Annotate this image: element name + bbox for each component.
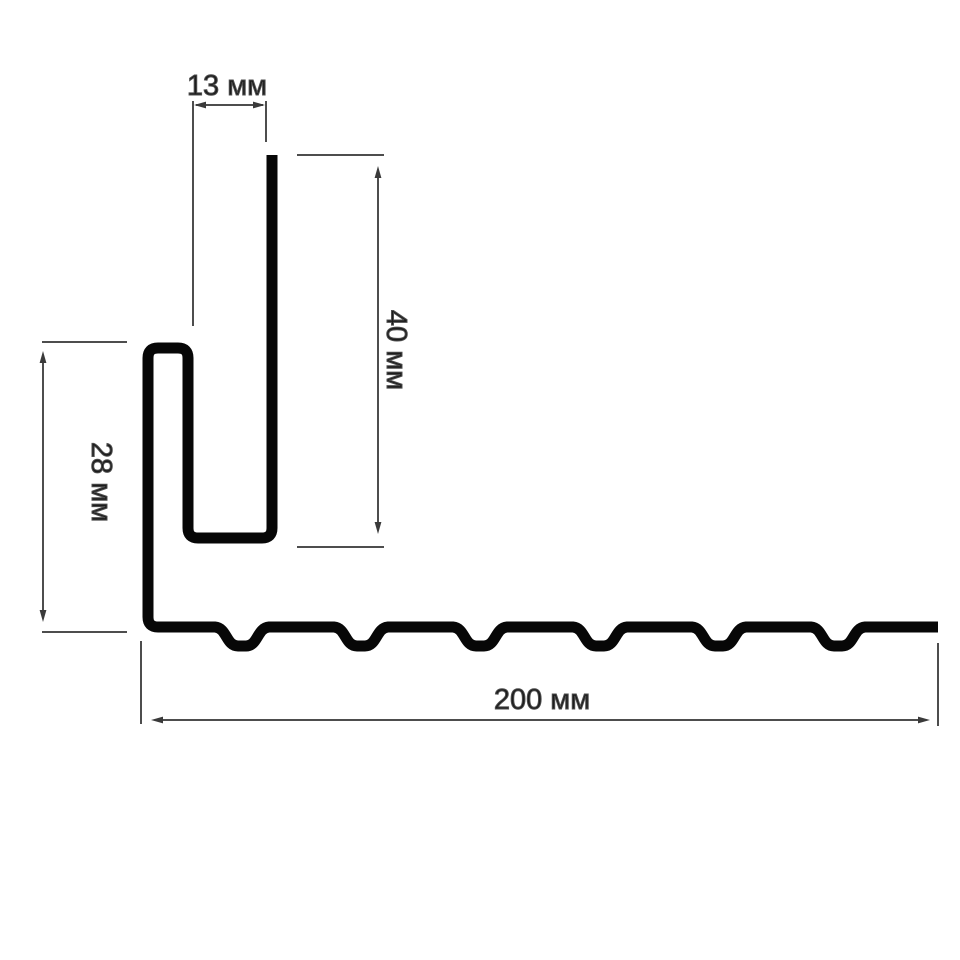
- profile-outline: [148, 155, 938, 646]
- dimension-label-28mm: 28 мм: [85, 442, 117, 522]
- arrowhead-up-icon: [40, 351, 47, 363]
- arrowhead-up-icon: [375, 166, 382, 178]
- dimension-200mm: 200 мм: [141, 641, 938, 726]
- dimension-label-200mm: 200 мм: [494, 684, 590, 716]
- technical-drawing-canvas: 13 мм 40 мм 28 мм 200 мм: [0, 0, 960, 960]
- arrowhead-right-icon: [253, 102, 265, 109]
- arrowhead-down-icon: [40, 610, 47, 622]
- arrowhead-left-icon: [151, 717, 163, 724]
- dimension-28mm: 28 мм: [40, 342, 127, 632]
- profile-drawing: 13 мм 40 мм 28 мм 200 мм: [0, 0, 960, 960]
- dimension-13mm: 13 мм: [187, 70, 267, 326]
- dimension-label-40mm: 40 мм: [380, 310, 412, 390]
- arrowhead-left-icon: [194, 102, 206, 109]
- arrowhead-down-icon: [375, 522, 382, 534]
- arrowhead-right-icon: [918, 717, 930, 724]
- dimension-40mm: 40 мм: [297, 155, 412, 547]
- dimension-label-13mm: 13 мм: [187, 70, 267, 102]
